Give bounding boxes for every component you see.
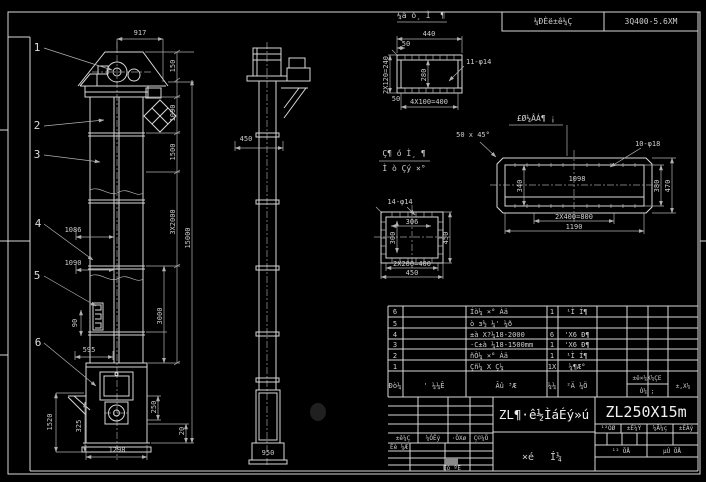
dim-950-side: 950 xyxy=(262,449,275,457)
highlight-cell xyxy=(445,458,458,465)
front-view-dimensions: 917 150 1090 1500 3X2000 3000 15000 250 … xyxy=(46,29,194,460)
bom-row-material: ¹Ì Í¶ xyxy=(566,307,587,316)
sheet-border xyxy=(0,12,706,474)
dim-2x400: 2X400=800 xyxy=(555,213,593,221)
dim-450-bottom: 450 xyxy=(406,269,419,277)
bom-row-material: ¹Ì Í¶ xyxy=(566,351,587,360)
detail-long-note: £Ø¼ÂÁ¶ ¡ xyxy=(517,112,556,123)
dim-15000: 15000 xyxy=(184,227,192,248)
dim-50-bottom: 50 xyxy=(392,95,400,103)
bom-row-name: Íò¼ ×° Àä xyxy=(470,307,508,316)
dim-3000: 3000 xyxy=(156,308,164,325)
dim-3x2000: 3X2000 xyxy=(169,209,177,234)
dim-595: 595 xyxy=(83,346,96,354)
holes-11-14: 11-φ14 xyxy=(466,58,491,66)
dim-1190: 1190 xyxy=(566,223,583,231)
dim-4x100: 4X100=400 xyxy=(410,98,448,106)
balloon-6: 6 xyxy=(35,336,42,349)
tb-pages-total: ¹² ÕÅ xyxy=(612,448,630,455)
flange-detail-square: 14-φ14 306 300 450 2X200=400 450 xyxy=(374,198,452,279)
bom-row-material: 'X6 Ð¶ xyxy=(564,341,589,349)
dim-90: 90 xyxy=(71,319,79,327)
dim-1090-right: 1090 xyxy=(169,105,177,122)
bom-row-name: Çñ¼ X Ç¼ xyxy=(470,363,504,371)
tb-row-design: Éè ¼Æ xyxy=(390,443,408,451)
tb-label-count: ¼ÓÊý xyxy=(426,434,441,442)
bom-row-name: ·C±à ¼18-1500mm xyxy=(470,341,533,349)
dim-1500: 1500 xyxy=(169,144,177,161)
dim-325: 325 xyxy=(75,420,83,433)
detail-top-title: ¼ä ó¸ Ì¨ ¶ xyxy=(397,9,445,20)
dim-450-square: 450 xyxy=(442,232,450,245)
dim-280: 280 xyxy=(420,69,428,82)
bom-row-no: 6 xyxy=(393,308,397,316)
dim-1098: 1098 xyxy=(569,175,586,183)
tb-pages-no: µÚ ÕÅ xyxy=(663,448,681,455)
bom-row-no: 4 xyxy=(393,331,397,339)
tb-right-h4: ±ÈÀý xyxy=(679,424,694,432)
dim-1090-left: 1090 xyxy=(65,259,82,267)
flange-detail-long: £Ø¼ÂÁ¶ ¡ 50 x 45° 10-φ18 1098 340 380 47… xyxy=(456,112,676,234)
front-elevation-view xyxy=(68,42,176,460)
title-block: ±ê¼Ç ¼ÓÊý ·ÖXø Ç©¼Ö Éè ¼Æ Éó ºË ZL¶·ê½Ìá… xyxy=(388,397,698,472)
bom-row-no: 1 xyxy=(393,363,397,371)
dim-380: 380 xyxy=(653,180,661,193)
bom-header-name: Ãû ³Æ xyxy=(495,381,517,390)
bom-row-material: ¼¶Æ° xyxy=(569,363,586,371)
tb-label-sign: Ç©¼Ö xyxy=(474,435,489,442)
bom-header-material: ²Ä ¼Ö xyxy=(566,381,587,390)
dim-917: 917 xyxy=(134,29,147,37)
bom-row-qty: 1 xyxy=(550,352,554,360)
bom-row-qty: 1 xyxy=(550,341,554,349)
dim-1086: 1086 xyxy=(65,226,82,234)
dim-300: 300 xyxy=(389,232,397,245)
bom-row-name: ò з½ ¼' ¼ð xyxy=(470,320,512,328)
stamp-right-label: 3Q400-5.6XM xyxy=(625,17,678,26)
screen-artifact xyxy=(310,403,326,421)
tb-right-h2: ±È¼Ý xyxy=(627,424,642,432)
drawing-subtitle-2: Í¼ xyxy=(550,450,562,463)
dim-450-side: 450 xyxy=(240,135,253,143)
revision-stamp: ¼ÐÈë±ê¼Ç 3Q400-5.6XM xyxy=(502,12,698,31)
chamfer-note: 50 x 45° xyxy=(456,131,490,139)
bom-header-code: ' ¼¼Ê xyxy=(423,381,444,390)
tb-right-h1: ¹²ÖØ xyxy=(601,425,616,432)
bom-row-no: 3 xyxy=(393,341,397,349)
drawing-canvas: ¼ÐÈë±ê¼Ç 3Q400-5.6XM 917 150 1090 1500 3… xyxy=(0,0,706,482)
holes-14-14: 14-φ14 xyxy=(387,198,412,206)
bom-header-use: Ó¼ ; xyxy=(640,388,654,395)
dim-306: 306 xyxy=(406,218,419,226)
flange-detail-top: ¼ä ó¸ Ì¨ ¶ 440 50 2X120=240 280 50 4X100… xyxy=(382,9,491,110)
dim-250: 250 xyxy=(150,401,158,414)
tb-right-h3: ¼Ä¼ç xyxy=(653,425,668,432)
dim-150: 150 xyxy=(169,60,177,73)
dim-2x120: 2X120=240 xyxy=(382,56,390,94)
side-elevation-view: 450 950 xyxy=(235,42,310,466)
balloon-2: 2 xyxy=(34,119,41,132)
balloon-callouts: 1 2 3 4 5 6 xyxy=(34,41,112,386)
stamp-left-label: ¼ÐÈë±ê¼Ç xyxy=(534,15,573,26)
bom-table: 6 Íò¼ ×° Àä 1 ¹Ì Í¶ 5 ò з½ ¼' ¼ð 4 ±à X?… xyxy=(388,306,698,397)
drawing-title: ZL¶·ê½ÌáÉý»ú xyxy=(499,407,589,422)
section-label-line1: Ç¶ ó Ì¸ ¶ xyxy=(382,147,426,158)
dim-470: 470 xyxy=(664,180,672,193)
bom-row-qty: 6 xyxy=(550,331,554,339)
balloon-3: 3 xyxy=(34,148,41,161)
bom-row-name: ñÒ¼ ×° Àä xyxy=(470,351,508,360)
bom-header-no: Ðò¼ xyxy=(389,382,402,390)
dim-50-top: 50 xyxy=(402,40,410,48)
bom-row-material: 'X6 Ð¶ xyxy=(564,331,589,339)
bom-header-qty: ¼¼ xyxy=(548,382,556,390)
dim-440: 440 xyxy=(423,30,436,38)
section-label-line2: Ì ò Çý ×° xyxy=(382,162,425,173)
section-label: Ç¶ ó Ì¸ ¶ Ì ò Çý ×° xyxy=(379,147,430,173)
bom-row-qty: 1X xyxy=(548,363,557,371)
dim-340: 340 xyxy=(516,180,524,193)
tb-label-mark: ±ê¼Ç xyxy=(396,435,411,442)
bom-row-qty: 1 xyxy=(550,308,554,316)
holes-10-18: 10-φ18 xyxy=(635,140,660,148)
drawing-model: ZL250X15m xyxy=(605,403,686,421)
cad-drawing-sheet: ¼ÐÈë±ê¼Ç 3Q400-5.6XM 917 150 1090 1500 3… xyxy=(0,0,706,482)
balloon-1: 1 xyxy=(34,41,41,54)
bom-row-no: 2 xyxy=(393,352,397,360)
tb-row-audit: Éó ºË xyxy=(443,464,461,472)
bom-row-name: ±à X?¼18-2000 xyxy=(470,331,525,339)
drawing-subtitle-1: ×é xyxy=(522,451,534,463)
dim-20: 20 xyxy=(178,427,186,435)
balloon-4: 4 xyxy=(35,217,42,230)
dim-1520: 1520 xyxy=(46,414,54,431)
bom-header-std: ±ê×¼X¼ÇE xyxy=(633,375,662,382)
tb-label-zone: ·ÖXø xyxy=(452,435,467,442)
bom-header-note: ±,X¼ xyxy=(676,383,691,390)
balloon-5: 5 xyxy=(34,269,41,282)
dim-2x200: 2X200=400 xyxy=(393,260,431,268)
bom-row-no: 5 xyxy=(393,320,397,328)
dim-1298: 1298 xyxy=(109,446,126,454)
